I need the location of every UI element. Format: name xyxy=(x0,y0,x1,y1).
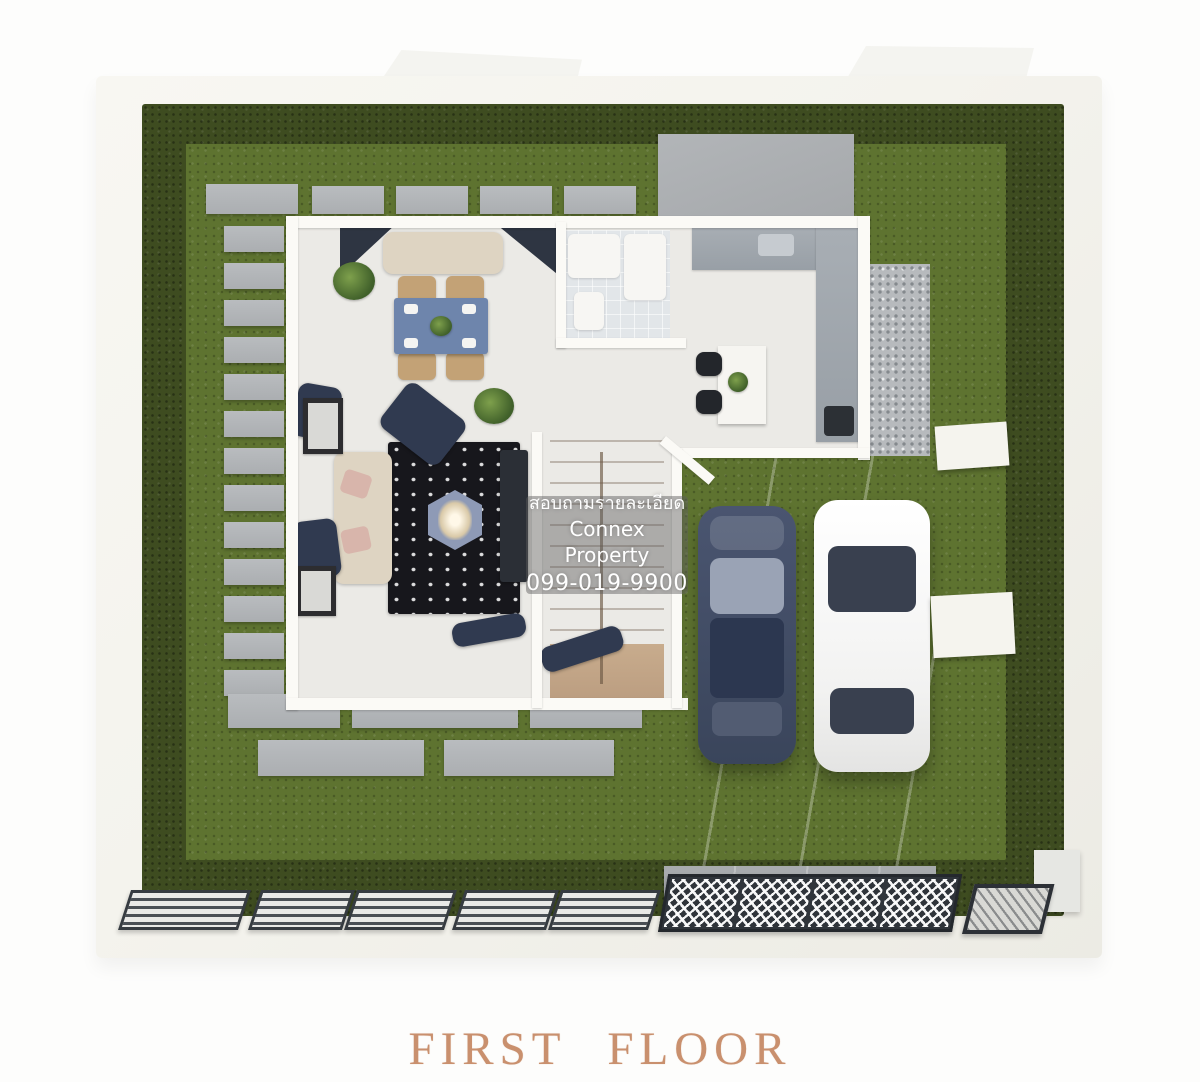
front-fence-panel xyxy=(452,890,559,930)
place-setting xyxy=(404,338,418,348)
paver-tile xyxy=(224,522,284,548)
watermark: สอบถามรายละเอียด Connex Property 099-019… xyxy=(526,496,688,594)
car-windshield xyxy=(828,546,916,612)
paver-tile xyxy=(224,300,284,326)
floor-caption: FIRST FLOOR xyxy=(0,1022,1200,1076)
paver-tile xyxy=(224,226,284,252)
gate-lattice-panel xyxy=(736,879,812,927)
gate-lattice-panel xyxy=(664,879,740,927)
house-wall xyxy=(556,338,686,348)
paver-tile xyxy=(396,186,468,214)
paver-tile xyxy=(224,596,284,622)
paver-tile xyxy=(224,485,284,511)
watermark-line-thai: สอบถามรายละเอียด xyxy=(529,492,685,516)
wall-picture-frame xyxy=(296,566,336,616)
front-fence-panel xyxy=(118,890,251,930)
house-wall xyxy=(286,698,688,710)
house-wall xyxy=(286,216,298,710)
paver-tile xyxy=(312,186,384,214)
car-rear-window xyxy=(712,702,782,736)
car-white xyxy=(814,500,930,772)
paver-tile xyxy=(224,411,284,437)
watermark-line-phone: 099-019-9900 xyxy=(526,569,688,598)
front-fence-panel xyxy=(548,890,661,930)
paver-tile xyxy=(564,186,636,214)
paver-tile xyxy=(224,337,284,363)
dining-plant xyxy=(333,262,375,300)
toilet xyxy=(574,292,604,330)
paver-tile xyxy=(224,448,284,474)
front-fence-panel xyxy=(344,890,457,930)
car-roof xyxy=(710,618,784,698)
living-plant xyxy=(474,388,514,424)
paver-tile xyxy=(224,670,284,696)
coffee-table-top xyxy=(438,500,472,540)
wall-picture-frame xyxy=(303,398,343,454)
vanity xyxy=(624,234,666,300)
paver-slab xyxy=(258,740,424,776)
table-centerpiece xyxy=(430,316,452,336)
stove xyxy=(824,406,854,436)
dining-chair xyxy=(398,352,436,380)
gravel-strip xyxy=(868,264,930,456)
gate-lattice-panel xyxy=(880,879,956,927)
shower-tray xyxy=(568,234,620,278)
car-rear-window xyxy=(830,688,914,734)
place-setting xyxy=(462,304,476,314)
daybed-bench xyxy=(383,232,503,274)
place-setting xyxy=(404,304,418,314)
sofa xyxy=(334,452,392,584)
house-wall xyxy=(858,216,870,460)
back-patio-slab xyxy=(658,134,854,222)
house-wall xyxy=(556,222,566,348)
bar-stool xyxy=(696,352,722,376)
place-setting xyxy=(462,338,476,348)
paver-slab xyxy=(444,740,614,776)
paver-tile xyxy=(224,263,284,289)
paver-tile xyxy=(224,633,284,659)
house-wall xyxy=(680,448,870,458)
house-wall xyxy=(286,216,870,228)
bar-plant xyxy=(728,372,748,392)
paver-tile xyxy=(224,559,284,585)
side-gate xyxy=(962,884,1054,934)
sink xyxy=(758,234,794,256)
bar-stool xyxy=(696,390,722,414)
floor-plan-rendering: สอบถามรายละเอียด Connex Property 099-019… xyxy=(0,0,1200,1082)
watermark-line-brand: Connex Property xyxy=(526,516,688,569)
car-dark xyxy=(698,506,796,764)
dining-chair xyxy=(446,352,484,380)
paver-tile xyxy=(206,184,298,214)
garden-bench xyxy=(935,422,1010,471)
gate-lattice-panel xyxy=(808,879,884,927)
car-hood-highlight xyxy=(710,516,784,550)
tv-console xyxy=(500,450,528,582)
garden-bench xyxy=(930,592,1015,658)
front-fence-panel xyxy=(248,890,355,930)
paver-tile xyxy=(224,374,284,400)
car-windshield xyxy=(710,558,784,614)
driveway-gate xyxy=(658,874,962,932)
paver-tile xyxy=(480,186,552,214)
